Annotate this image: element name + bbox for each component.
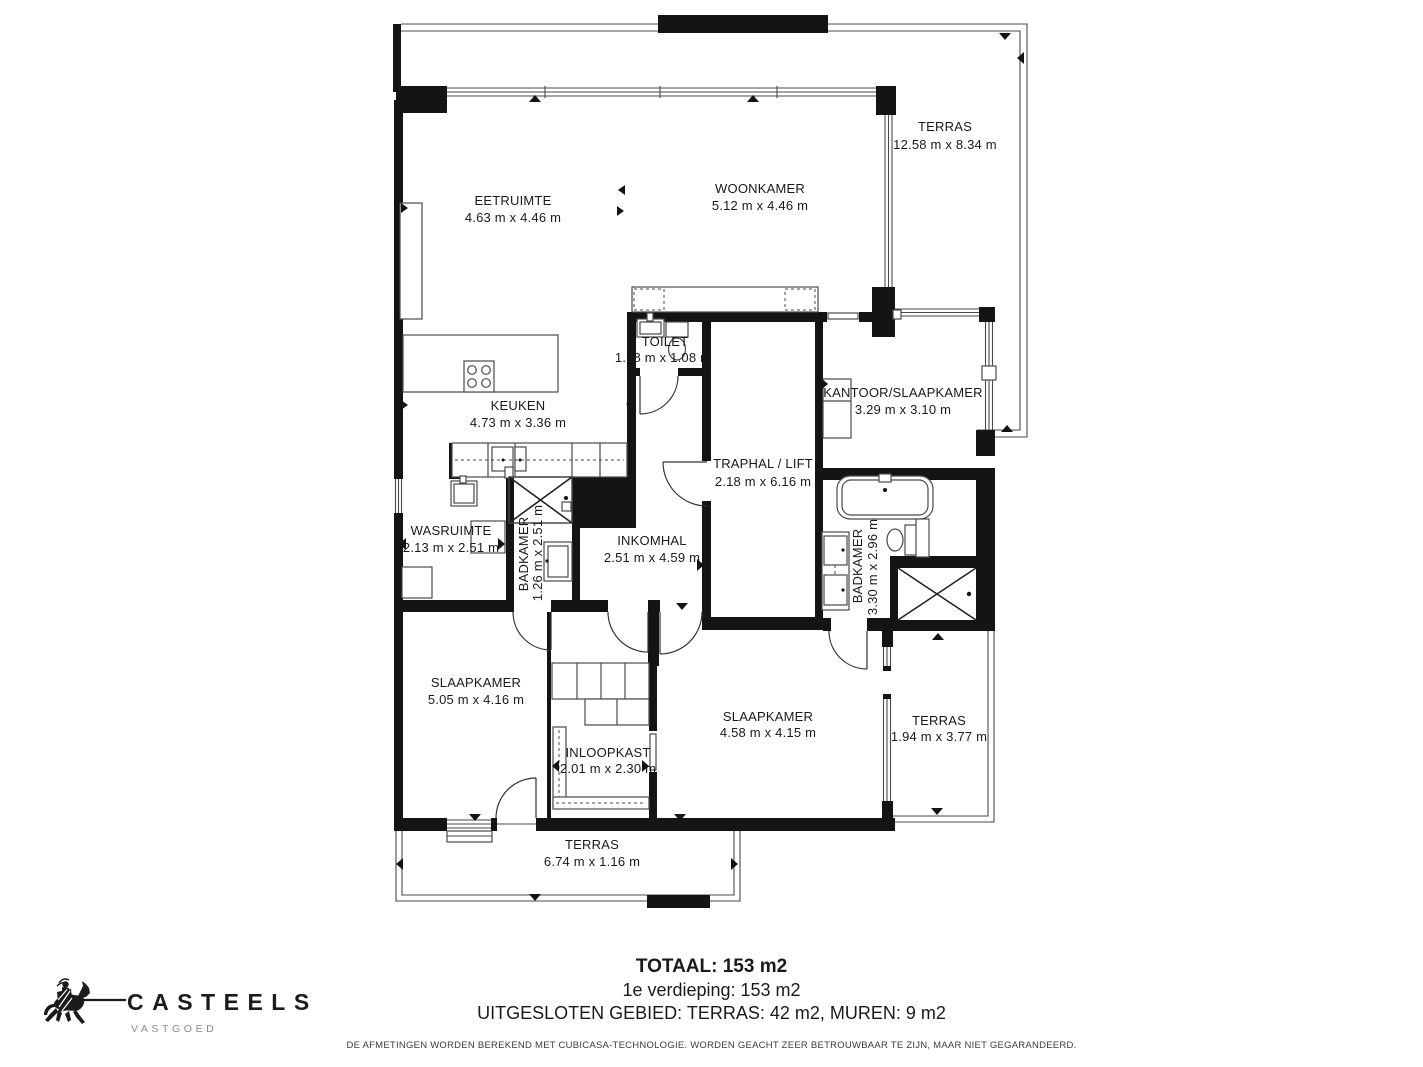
- room-label: BADKAMER: [516, 517, 531, 592]
- room-label: INLOOPKAST: [565, 745, 650, 760]
- kitchen-counter-icon: [452, 443, 627, 478]
- room-label: KEUKEN: [491, 398, 546, 413]
- room-dims: 6.74 m x 1.16 m: [544, 854, 640, 869]
- room-label: TRAPHAL / LIFT: [713, 456, 813, 471]
- door-arcs: [496, 376, 867, 818]
- wardrobe-band-icon: [632, 287, 818, 312]
- window-livingroom-right: [885, 115, 892, 287]
- room-label: TOILET: [642, 334, 688, 349]
- room-dims: 2.13 m x 2.51 m: [403, 540, 499, 555]
- window-office-top: [893, 309, 979, 319]
- room-label: INKOMHAL: [617, 533, 687, 548]
- room-label: SLAAPKAMER: [431, 675, 521, 690]
- room-dims: 3.29 m x 3.10 m: [855, 402, 951, 417]
- room-label: TERRAS: [918, 119, 972, 134]
- floorplan-page: TERRAS 12.58 m x 8.34 m WOONKAMER 5.12 m…: [0, 0, 1423, 1067]
- toilet-icon: [887, 519, 929, 557]
- room-dims: 5.05 m x 4.16 m: [428, 692, 524, 707]
- room-dims: 1.38 m x 1.08 m: [615, 350, 711, 365]
- room-label: TERRAS: [565, 837, 619, 852]
- window-bottom-left: [447, 820, 492, 842]
- room-dims: 5.12 m x 4.46 m: [712, 198, 808, 213]
- floorplan-drawing: TERRAS 12.58 m x 8.34 m WOONKAMER 5.12 m…: [0, 0, 1423, 1067]
- bathtub-icon: [837, 474, 933, 519]
- double-vanity-icon: [822, 532, 849, 610]
- room-label: WOONKAMER: [715, 181, 805, 196]
- sink-icon: [451, 481, 477, 506]
- room-label: EETRUIMTE: [475, 193, 552, 208]
- sliding-door-icon: [828, 313, 858, 319]
- kitchen-island-icon: [403, 335, 558, 392]
- cabinet-icon: [400, 203, 422, 319]
- room-dims: 1.94 m x 3.77 m: [891, 729, 987, 744]
- room-label: SLAAPKAMER: [723, 709, 813, 724]
- brand-tagline: VASTGOED: [131, 1023, 217, 1035]
- brand-name: CASTEELS: [127, 989, 318, 1016]
- window-top-band: [447, 86, 876, 98]
- disclaimer-text: DE AFMETINGEN WORDEN BEREKEND MET CUBICA…: [0, 1040, 1423, 1051]
- window-left-wall: [396, 479, 402, 513]
- knight-on-horse-icon: [38, 974, 130, 1040]
- room-label: WASRUIMTE: [411, 523, 492, 538]
- room-label: BADKAMER: [850, 529, 865, 604]
- room-dims: 2.01 m x 2.30 m: [560, 761, 656, 776]
- room-dims: 3.30 m x 2.96 m: [865, 519, 880, 615]
- shaft-x-icon: [898, 568, 976, 620]
- window-office-right: [982, 322, 996, 430]
- total-area-text: TOTAAL: 153 m2: [0, 956, 1423, 978]
- room-dims: 2.18 m x 6.16 m: [715, 474, 811, 489]
- room-dims: 1.26 m x 2.51 m: [530, 505, 545, 601]
- room-dims: 4.63 m x 4.46 m: [465, 210, 561, 225]
- room-dims: 12.58 m x 8.34 m: [893, 137, 997, 152]
- room-dims: 4.58 m x 4.15 m: [720, 725, 816, 740]
- room-dims: 2.51 m x 4.59 m: [604, 550, 700, 565]
- room-dims: 4.73 m x 3.36 m: [470, 415, 566, 430]
- walkin-closet-icon: [552, 663, 649, 809]
- room-label: KANTOOR/SLAAPKAMER: [823, 385, 982, 400]
- room-label: TERRAS: [912, 713, 966, 728]
- sink-icon: [544, 542, 572, 581]
- appliance-icon: [402, 567, 432, 598]
